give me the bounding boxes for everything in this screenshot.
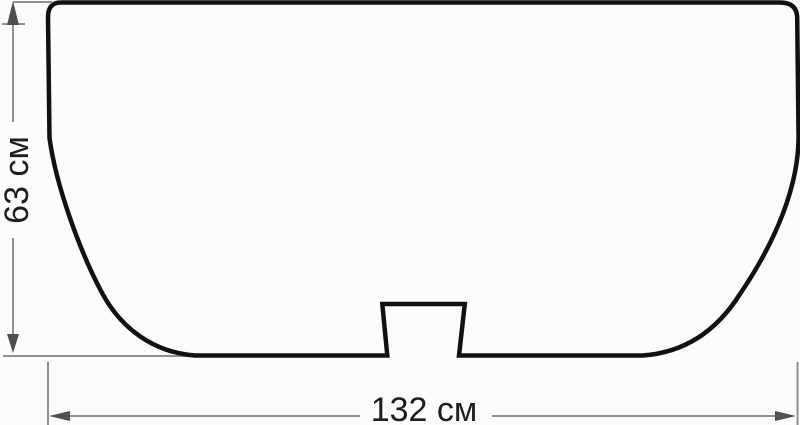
arrow-right-icon [775,411,796,421]
dimension-drawing: 63 см 132 см [0,0,800,425]
arrow-left-icon [49,411,70,421]
arrow-down-icon [7,334,19,353]
technical-drawing-canvas: 63 см 132 см [0,0,800,425]
height-dimension-label: 63 см [0,136,36,224]
width-dimension: 132 см [48,362,798,425]
width-dimension-label: 132 см [371,391,478,425]
shape-outline [48,3,799,356]
height-dimension: 63 см [0,1,206,356]
arrow-up-icon [7,1,19,25]
